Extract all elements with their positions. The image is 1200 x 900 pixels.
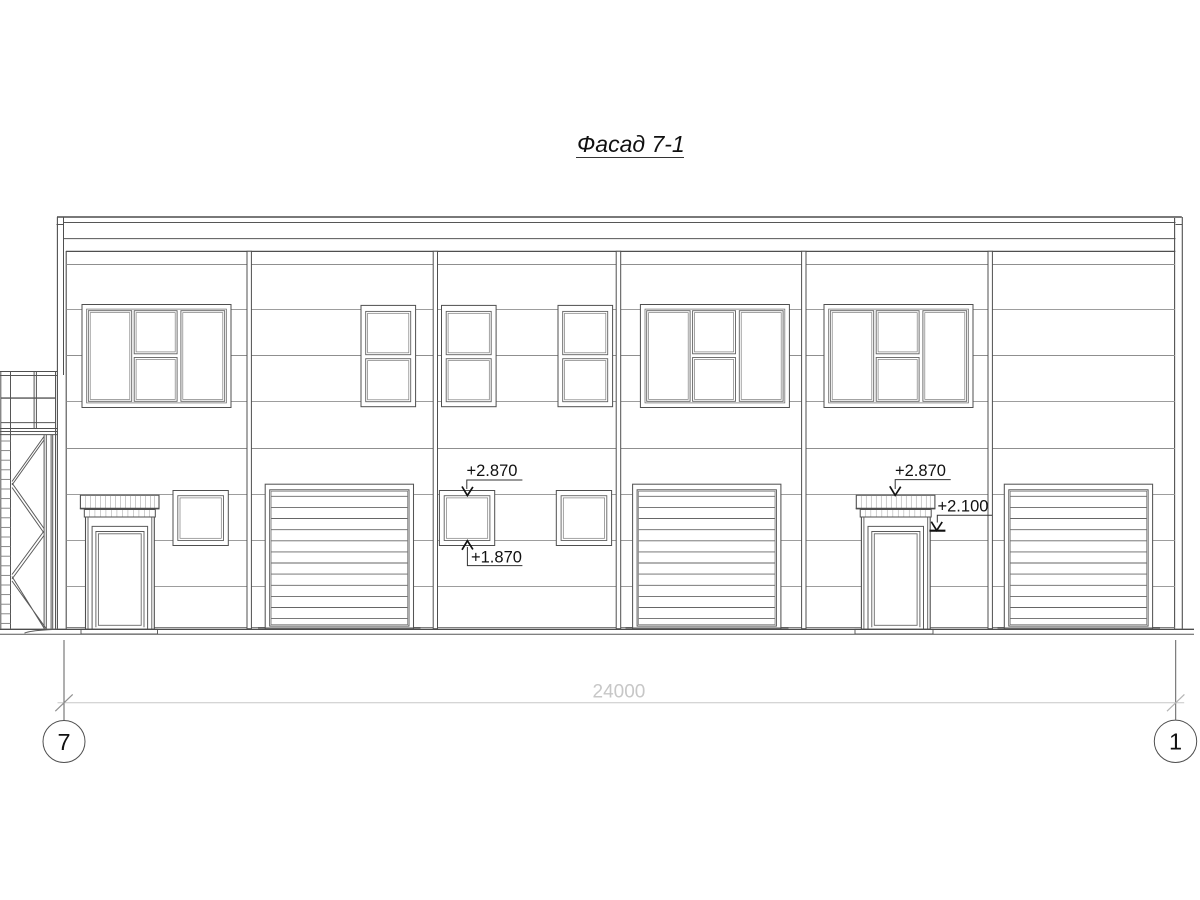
- svg-text:+2.100: +2.100: [938, 498, 989, 516]
- svg-text:+2.870: +2.870: [467, 462, 518, 480]
- svg-text:+2.870: +2.870: [895, 462, 946, 480]
- svg-text:7: 7: [57, 729, 70, 755]
- svg-text:1: 1: [1169, 729, 1182, 755]
- svg-text:Фасад 7-1: Фасад 7-1: [577, 131, 685, 157]
- svg-text:+1.870: +1.870: [471, 548, 522, 566]
- svg-text:24000: 24000: [593, 682, 646, 703]
